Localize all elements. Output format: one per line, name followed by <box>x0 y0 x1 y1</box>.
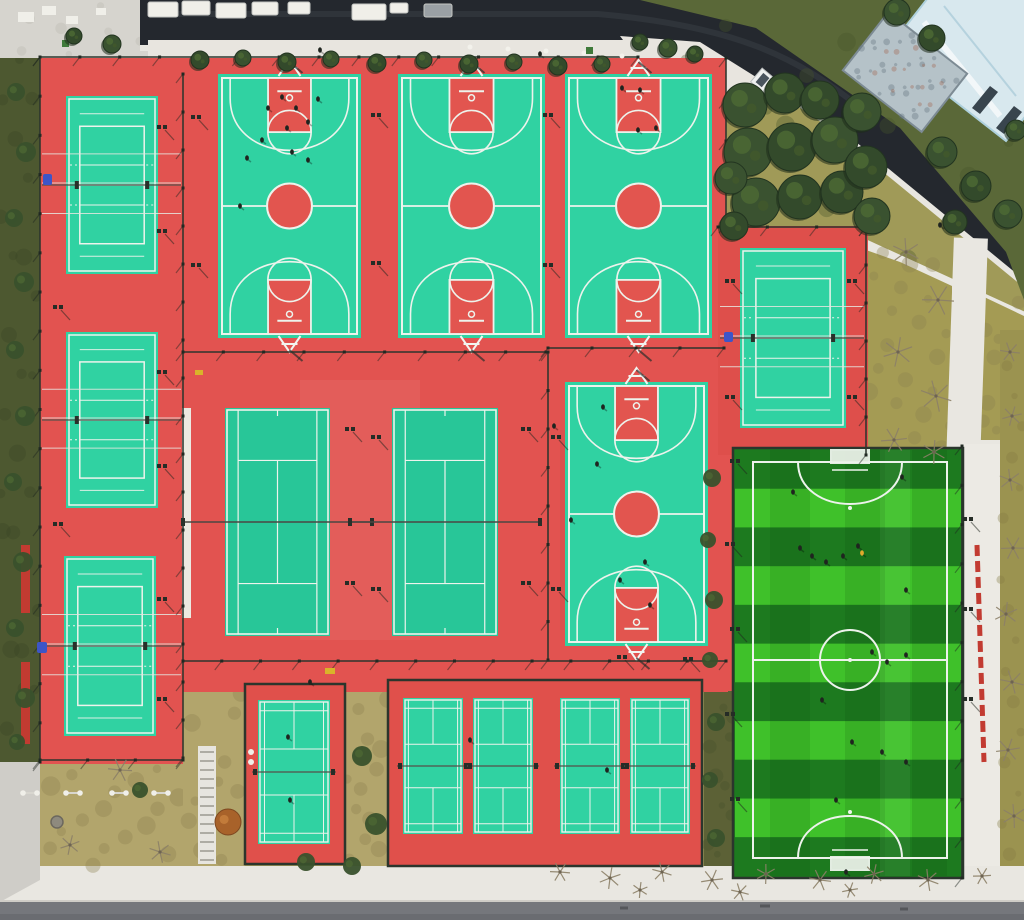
fixture-block <box>345 581 349 585</box>
shrub <box>5 209 23 227</box>
fixture-block <box>377 261 381 265</box>
person-body <box>654 125 658 130</box>
texture-dot <box>719 19 732 32</box>
fixture-block <box>371 587 375 591</box>
bare-trunk <box>872 872 875 875</box>
canopy-light <box>786 182 803 199</box>
fixture-block <box>197 115 201 119</box>
texture-dot <box>351 804 361 814</box>
texture-dot <box>992 426 1001 435</box>
canopy-light <box>696 53 700 57</box>
fixture-block <box>736 627 740 631</box>
fixture-block <box>557 435 561 439</box>
person-body <box>648 602 652 607</box>
texture-dot <box>719 802 725 808</box>
centre-circle <box>614 492 659 537</box>
texture-dot <box>183 714 201 732</box>
texture-dot <box>837 33 856 52</box>
person-body <box>841 553 845 558</box>
person-body <box>904 759 908 764</box>
texture-dot <box>352 703 364 715</box>
sidewalk-bench-3 <box>544 49 549 54</box>
canopy <box>278 53 296 71</box>
texture-dot <box>887 306 897 316</box>
fixture-block <box>736 797 740 801</box>
fixture-block <box>371 261 375 265</box>
person-body <box>885 659 889 664</box>
person-body <box>266 105 270 110</box>
fixture-block <box>157 697 161 701</box>
texture-dot <box>996 576 1004 584</box>
canopy-light <box>947 214 956 223</box>
canopy <box>943 210 967 234</box>
shrub <box>9 734 25 750</box>
basketball-court-2 <box>398 60 545 361</box>
shrub <box>365 813 387 835</box>
shrub-light <box>368 817 377 826</box>
sidewalk-bench-4 <box>582 51 587 56</box>
texture-dot <box>230 784 245 799</box>
texture-dot <box>912 315 927 330</box>
texture-dot <box>361 732 374 745</box>
person-body <box>316 96 320 101</box>
canopy-light <box>794 145 805 156</box>
canopy-light <box>378 62 382 66</box>
stepping-stone-path <box>198 746 216 864</box>
fixture-block <box>551 435 555 439</box>
canopy-light <box>1010 123 1018 131</box>
canopy-light <box>509 57 515 63</box>
canopy <box>994 200 1022 228</box>
fixture-block <box>345 427 349 431</box>
fixture-block <box>157 229 161 233</box>
texture-dot <box>915 406 932 423</box>
person-body <box>245 155 249 160</box>
bare-trunk <box>848 888 851 891</box>
shrub-light <box>134 785 140 791</box>
canopy-light <box>281 56 288 63</box>
bench-seat <box>20 790 26 796</box>
texture-dot <box>0 722 14 736</box>
canopy-light <box>559 65 563 69</box>
person-body <box>834 797 838 802</box>
bare-trunk <box>764 872 767 875</box>
texture-dot <box>1012 636 1020 644</box>
fixture-block <box>157 464 161 468</box>
shrub-light <box>704 655 710 661</box>
bare-trunk <box>904 250 907 253</box>
person-body <box>638 87 642 92</box>
shrub <box>343 857 361 875</box>
canopy <box>460 55 478 73</box>
texture-dot <box>869 271 878 280</box>
person-body <box>810 553 814 558</box>
canopy-light <box>641 41 645 45</box>
fixture-block <box>847 395 851 399</box>
net-post <box>398 763 402 769</box>
canopy <box>594 56 610 72</box>
bare-trunk <box>1010 680 1013 683</box>
person-body <box>601 404 605 409</box>
texture-dot <box>150 802 164 816</box>
canopy-light <box>733 136 751 154</box>
west-corner-pavement <box>0 762 40 902</box>
canopy-light <box>419 55 425 61</box>
shrub <box>7 83 25 101</box>
person-body <box>844 869 848 874</box>
bare-trunk <box>936 298 939 301</box>
scene-canvas <box>0 0 1024 920</box>
texture-dot <box>880 338 894 352</box>
person-body <box>552 423 556 428</box>
fixture-block <box>847 279 851 283</box>
fixture-block <box>163 464 167 468</box>
canopy-light <box>837 138 847 148</box>
person-body <box>288 797 292 802</box>
canopy-light <box>889 3 899 13</box>
person-body <box>260 137 264 142</box>
fixture-block <box>725 712 729 716</box>
texture-dot <box>17 46 27 56</box>
bare-trunk <box>896 350 899 353</box>
fixture-block <box>617 655 621 659</box>
person-body <box>880 749 884 754</box>
bare-trunk <box>818 878 821 881</box>
fixture-block <box>197 263 201 267</box>
shrub <box>352 746 372 766</box>
bare-trunk <box>1008 478 1011 481</box>
canopy <box>919 25 945 51</box>
net-post <box>534 763 538 769</box>
texture-dot <box>925 257 940 272</box>
shrub-light <box>18 410 26 418</box>
shrub-light <box>10 86 17 93</box>
bare-trunk <box>158 850 161 853</box>
canopy-light <box>1009 213 1015 219</box>
football-pitch <box>733 448 963 878</box>
shrub <box>6 341 24 359</box>
bench-seat <box>165 790 171 796</box>
badminton-court-b <box>467 698 539 834</box>
canopy-light <box>113 43 117 47</box>
fixture-block <box>59 522 63 526</box>
net-post <box>73 642 77 650</box>
person-body <box>318 47 322 52</box>
person-body <box>824 559 828 564</box>
fixture-block <box>969 607 973 611</box>
canopy-light <box>956 221 961 226</box>
person-body <box>860 550 864 555</box>
canopy-light <box>603 63 607 67</box>
person-body <box>605 767 609 772</box>
texture-dot <box>929 349 945 365</box>
texture-dot <box>703 740 717 754</box>
bare-trunk <box>1006 748 1009 751</box>
badminton-court-single <box>252 700 336 844</box>
canopy-light <box>967 176 978 187</box>
shrub-light <box>710 716 717 723</box>
penalty-spot-north <box>848 506 852 510</box>
texture-dot <box>714 851 721 858</box>
shrub <box>700 532 716 548</box>
shrub-light <box>8 212 15 219</box>
canopy-light <box>288 61 292 65</box>
canopy-light <box>924 29 934 39</box>
canopy <box>659 39 677 57</box>
canopy-light <box>515 61 519 65</box>
canopy-light <box>201 59 205 63</box>
texture-dot <box>890 397 902 409</box>
fixture-block <box>53 305 57 309</box>
fixture-block <box>730 459 734 463</box>
fixture-block <box>963 697 967 701</box>
canopy <box>323 51 339 67</box>
net-post <box>145 181 149 189</box>
canopy-light <box>106 38 113 45</box>
texture-dot <box>85 858 100 873</box>
fixture-block <box>853 279 857 283</box>
fixture-block <box>157 125 161 129</box>
yellow-marker-1 <box>325 668 335 674</box>
canopy-light <box>194 54 201 61</box>
texture-dot <box>799 68 814 83</box>
mow-shade <box>912 450 947 876</box>
texture-dot <box>1011 393 1017 399</box>
texture-dot <box>359 833 371 845</box>
net-post <box>831 334 835 342</box>
texture-dot <box>924 295 932 303</box>
canopy-light <box>853 153 869 169</box>
net-post <box>468 763 472 769</box>
fixture-block <box>963 517 967 521</box>
sidewalk-bench-2 <box>506 47 511 52</box>
key-paint <box>616 280 660 334</box>
canopy-light <box>802 195 812 205</box>
texture-dot <box>1015 791 1021 797</box>
canopy-light <box>873 215 881 223</box>
canopy <box>801 81 839 119</box>
parked-car <box>148 2 178 17</box>
aerial-photo-sports-complex <box>0 0 1024 920</box>
canopy-light <box>332 58 336 62</box>
badminton-court-a <box>397 698 469 834</box>
fixture-block <box>725 395 729 399</box>
canopy-light <box>662 42 669 49</box>
texture-dot <box>215 854 227 866</box>
mow-light <box>880 450 910 876</box>
canopy-light <box>597 59 603 65</box>
canopy-light <box>731 90 748 107</box>
bare-trunk <box>892 438 895 441</box>
shrub-light <box>7 476 14 483</box>
centre-circle <box>267 184 312 229</box>
fixture-block <box>725 279 729 283</box>
shrub-light <box>17 276 25 284</box>
bare-trunk <box>660 870 663 873</box>
shrub <box>14 272 34 292</box>
bare-trunk <box>738 890 741 893</box>
fixture-block <box>59 305 63 309</box>
texture-dot <box>99 843 110 854</box>
fixture-block <box>853 395 857 399</box>
texture-dot <box>880 118 896 134</box>
canopy-light <box>787 92 796 101</box>
fixture-block <box>557 587 561 591</box>
texture-dot <box>76 813 89 826</box>
texture-dot <box>104 27 112 35</box>
net-post <box>253 769 257 775</box>
texture-dot <box>41 776 60 795</box>
fixture-block <box>736 459 740 463</box>
canopy <box>845 146 887 188</box>
person-body <box>643 559 647 564</box>
bench-seat <box>109 790 115 796</box>
canopy-light <box>552 60 559 67</box>
person-body <box>850 739 854 744</box>
fixture-block <box>963 607 967 611</box>
parked-car <box>288 2 310 14</box>
canopy <box>416 52 432 68</box>
bare-trunk <box>932 450 935 453</box>
fixture-block <box>371 435 375 439</box>
texture-dot <box>55 23 66 34</box>
texture-dot <box>181 813 197 829</box>
bare-trunk <box>926 878 929 881</box>
fixture-block <box>543 113 547 117</box>
canopy <box>191 51 209 69</box>
fixture-block <box>543 263 547 267</box>
canopy <box>66 28 82 44</box>
orange-light <box>220 815 229 824</box>
texture-dot <box>997 819 1007 829</box>
parked-car <box>352 4 386 20</box>
canopy-light <box>238 53 244 59</box>
fixture-block <box>683 657 687 661</box>
fixture-block <box>163 370 167 374</box>
canopy-light <box>999 204 1010 215</box>
person-body <box>820 697 824 702</box>
canopy-light <box>829 178 845 194</box>
texture-dot <box>908 431 921 444</box>
bench-seat <box>34 790 40 796</box>
green-bin-2 <box>586 47 593 54</box>
canopy-light <box>244 57 248 61</box>
canopy-light <box>326 54 332 60</box>
person-body <box>938 222 942 227</box>
canopy-light <box>933 37 939 43</box>
shrub <box>15 688 35 708</box>
texture-dot <box>6 526 20 540</box>
fixture-block <box>549 263 553 267</box>
texture-dot <box>941 329 950 338</box>
fixture-block <box>731 542 735 546</box>
parked-car <box>424 4 452 17</box>
shrub-light <box>346 860 353 867</box>
fixture-block <box>157 370 161 374</box>
bench-seat <box>123 790 129 796</box>
south-road-shade <box>0 914 1024 920</box>
net-post <box>555 763 559 769</box>
key-paint <box>268 78 311 132</box>
canopy <box>843 93 881 131</box>
canopy-light <box>861 204 875 218</box>
fixture-block <box>377 587 381 591</box>
fixture-block <box>730 627 734 631</box>
bare-trunk <box>934 394 937 397</box>
person-body <box>538 51 542 56</box>
shrub-light <box>704 775 710 781</box>
key-paint <box>268 280 311 334</box>
texture-dot <box>153 765 161 773</box>
person-body <box>618 577 622 582</box>
texture-dot <box>218 755 232 769</box>
bare-trunk <box>1012 814 1015 817</box>
person-body <box>294 105 298 110</box>
texture-dot <box>28 371 36 379</box>
canopy-light <box>808 87 822 101</box>
fixture-block <box>191 263 195 267</box>
canopy-light <box>750 150 761 161</box>
fixture-block <box>731 395 735 399</box>
shrub <box>707 829 725 847</box>
canopy-light <box>844 191 853 200</box>
texture-dot <box>1007 695 1020 708</box>
sidewalk-bench-5 <box>620 54 625 59</box>
canopy-light <box>75 35 79 39</box>
fixture-block <box>521 581 525 585</box>
texture-dot <box>719 704 727 712</box>
corner-crate-4 <box>96 8 106 15</box>
net-post <box>331 769 335 775</box>
net-post <box>625 763 629 769</box>
fixture-block <box>163 597 167 601</box>
canopy-light <box>470 63 474 67</box>
canopy <box>884 0 910 25</box>
canopy <box>778 175 822 219</box>
badminton-court-c <box>554 698 626 834</box>
canopy-light <box>772 79 787 94</box>
person-body <box>870 649 874 654</box>
texture-dot <box>369 762 384 777</box>
person-body <box>285 125 289 130</box>
texture-dot <box>898 372 913 387</box>
fixture-block <box>351 427 355 431</box>
canopy-light <box>669 47 673 51</box>
canopy-light <box>735 225 741 231</box>
shrub <box>13 552 33 572</box>
fixture-block <box>521 427 525 431</box>
person-body <box>900 474 904 479</box>
canopy-light <box>721 167 733 179</box>
shrub <box>15 406 35 426</box>
person-body <box>306 119 310 124</box>
texture-dot <box>1002 360 1013 371</box>
texture-dot <box>9 445 26 462</box>
texture-dot <box>354 782 368 796</box>
shrub-light <box>11 737 17 743</box>
orange-tree <box>215 809 241 835</box>
fixture-block <box>371 113 375 117</box>
fixture-block <box>163 125 167 129</box>
texture-dot <box>137 816 156 835</box>
fixture-block <box>527 427 531 431</box>
canopy <box>632 34 648 50</box>
canopy-light <box>850 99 864 113</box>
bare-trunk <box>710 878 713 881</box>
texture-dot <box>894 281 908 295</box>
canopy <box>506 54 522 70</box>
fixture-block <box>527 581 531 585</box>
